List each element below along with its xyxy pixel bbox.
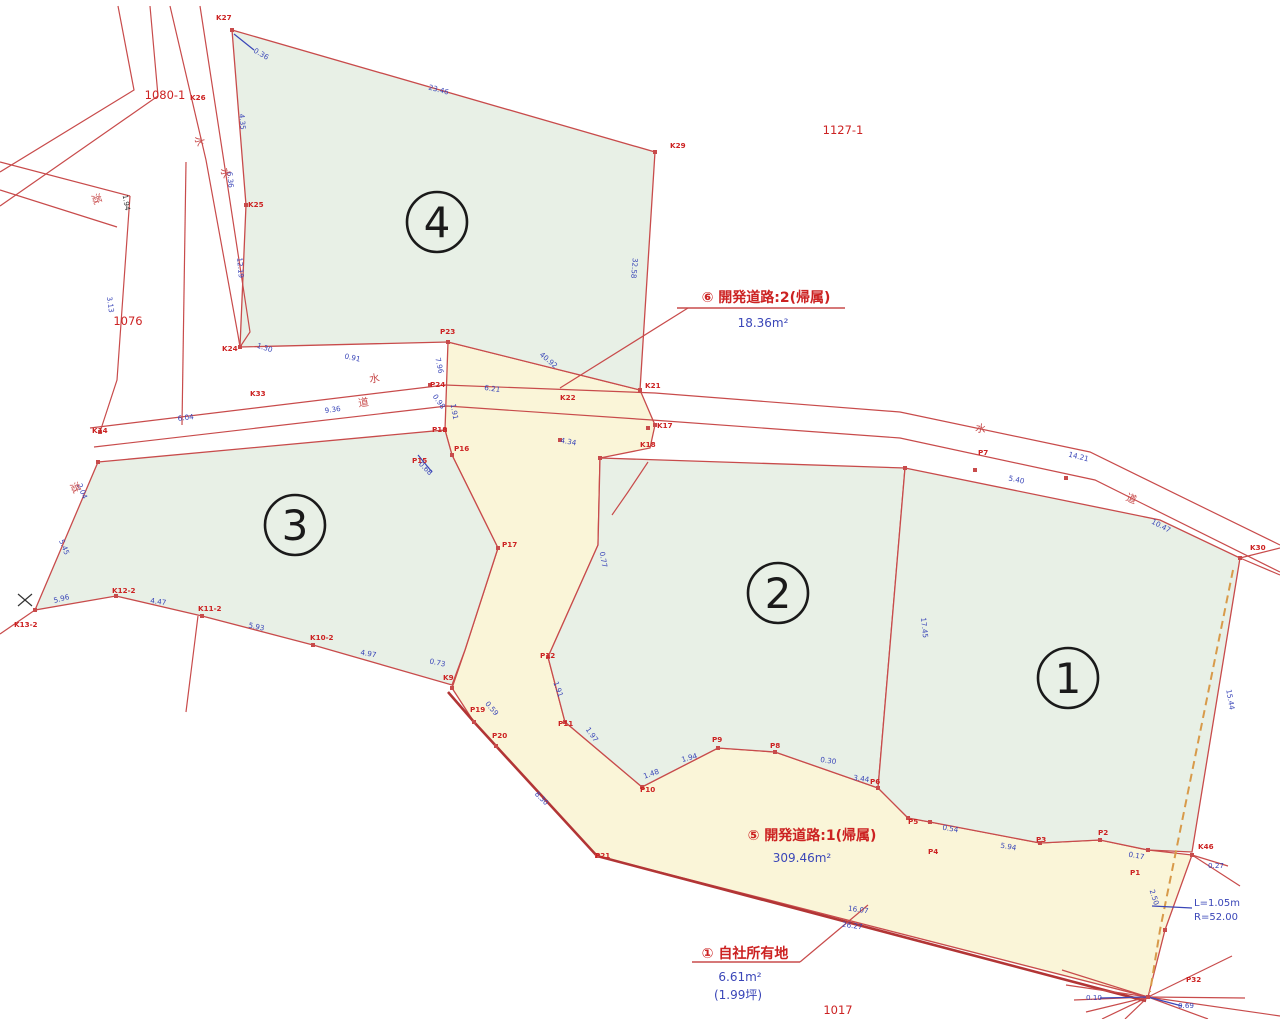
boundary-line	[1102, 997, 1148, 1019]
point-label: P17	[502, 540, 517, 549]
point-label: K29	[670, 141, 686, 150]
point-label: P3	[1036, 835, 1046, 844]
dimension-label: 4.35	[237, 113, 247, 130]
point-label: P23	[440, 327, 455, 336]
dimension-label: 0.98	[431, 392, 448, 411]
survey-point-marker	[773, 750, 777, 754]
dimension-label: 0.91	[344, 351, 362, 363]
own-land-annotation-label: ① 自社所有地	[702, 945, 789, 962]
survey-point-marker	[1163, 928, 1167, 932]
point-label: P20	[492, 731, 507, 740]
point-label: K17	[657, 421, 673, 430]
parcel-number: 1	[1055, 654, 1082, 703]
survey-point-marker	[450, 453, 454, 457]
landuse-kanji: 道	[357, 395, 370, 409]
landuse-kanji: 道	[1124, 491, 1139, 507]
survey-point-marker	[876, 786, 880, 790]
survey-point-marker	[1190, 853, 1194, 857]
survey-map: K27K26K25K24K29P23P24P18P16P15K22K21K17K…	[0, 0, 1280, 1019]
point-label: K11-2	[198, 604, 222, 613]
point-label: K14	[92, 426, 108, 435]
point-label: P6	[870, 777, 880, 786]
landuse-kanji: 漑	[88, 192, 104, 207]
curve-length-label: L=1.05m	[1194, 898, 1240, 909]
point-label: P8	[770, 741, 780, 750]
boundary-line	[186, 616, 198, 712]
point-label: K10-2	[310, 633, 334, 642]
lot-number: 1017	[823, 1003, 852, 1017]
point-label: K46	[1198, 842, 1214, 851]
point-label: P12	[540, 651, 555, 660]
dimension-label: 32.58	[629, 258, 640, 280]
dimension-label: 0.10	[1086, 993, 1102, 1002]
boundary-line	[1240, 558, 1280, 575]
point-label: P24	[430, 380, 445, 389]
survey-point-marker	[903, 466, 907, 470]
survey-point-marker	[638, 388, 642, 392]
survey-point-marker	[1146, 995, 1150, 999]
survey-point-marker	[472, 720, 476, 724]
dimension-label: 5.93	[248, 620, 266, 632]
lot-number: 1127-1	[823, 123, 864, 137]
survey-point-marker	[1146, 848, 1150, 852]
landuse-kanji: 水	[974, 422, 987, 436]
road1-annotation-label: ⑤ 開発道路:1(帰属)	[748, 827, 877, 844]
survey-point-marker	[653, 150, 657, 154]
point-label: P1	[1130, 868, 1140, 877]
point-label: K21	[645, 381, 661, 390]
road1-area-value: 309.46m²	[773, 851, 832, 865]
boundary-line	[0, 6, 134, 172]
survey-point-marker	[496, 546, 500, 550]
survey-point-marker	[96, 460, 100, 464]
parcel-2-area	[548, 458, 905, 788]
dimension-label: 7.96	[433, 357, 445, 375]
point-label: P5	[908, 817, 918, 826]
parcel-fill-layer	[35, 30, 1240, 997]
point-label: K33	[250, 389, 266, 398]
survey-point-marker	[230, 28, 234, 32]
point-label: K13-2	[14, 620, 38, 629]
parcel-number: 4	[424, 198, 451, 247]
dimension-label: 9.36	[324, 404, 342, 415]
boundary-line	[0, 162, 130, 196]
point-label: K26	[190, 93, 206, 102]
road2-annotation-label: ⑥ 開発道路:2(帰属)	[702, 289, 831, 306]
point-label: K25	[248, 200, 264, 209]
point-label: P18	[432, 425, 447, 434]
own-land-tsubo-value: (1.99坪)	[714, 988, 762, 1002]
survey-point-marker	[200, 614, 204, 618]
point-label: P7	[978, 448, 988, 457]
survey-point-marker	[598, 456, 602, 460]
point-label: P19	[470, 705, 485, 714]
boundary-line	[182, 162, 186, 425]
dimension-label: 4.47	[150, 596, 167, 607]
point-label: K24	[222, 344, 238, 353]
point-label: P4	[928, 847, 938, 856]
dimension-label: 26.27	[842, 920, 864, 932]
parcel-number: 3	[282, 501, 309, 550]
boundary-line	[1148, 997, 1280, 1016]
point-label: P2	[1098, 828, 1108, 837]
point-label: P21	[595, 851, 610, 860]
survey-point-marker	[450, 686, 454, 690]
dimension-label: 15.44	[1224, 689, 1237, 711]
survey-point-marker	[33, 608, 37, 612]
survey-point-marker	[1064, 476, 1068, 480]
point-label: K30	[1250, 543, 1266, 552]
survey-point-marker	[494, 744, 498, 748]
point-label: P9	[712, 735, 722, 744]
boundary-line	[1192, 855, 1240, 886]
dimension-label: 0.69	[1178, 1001, 1194, 1010]
dimension-label: 0.27	[1208, 861, 1224, 870]
point-label: K27	[216, 13, 232, 22]
survey-point-marker	[446, 340, 450, 344]
curve-radius-label: R=52.00	[1194, 912, 1238, 923]
boundary-line	[0, 6, 158, 206]
survey-point-marker	[311, 643, 315, 647]
boundary-line	[1148, 997, 1245, 998]
parcel-number: 2	[765, 569, 792, 618]
survey-point-marker	[973, 468, 977, 472]
point-label: K9	[443, 673, 454, 682]
dimension-label: 1.94	[121, 194, 133, 212]
survey-point-marker	[1098, 838, 1102, 842]
landuse-kanji: 水	[192, 135, 206, 149]
survey-point-marker	[1238, 556, 1242, 560]
landuse-kanji: 水	[369, 372, 382, 385]
point-label: P10	[640, 785, 655, 794]
lot-number: 1080-1	[145, 88, 186, 102]
road2-area-value: 18.36m²	[738, 316, 789, 330]
point-label: P32	[1186, 975, 1201, 984]
survey-point-marker	[928, 820, 932, 824]
point-label: K12-2	[112, 586, 136, 595]
point-label: P11	[558, 719, 573, 728]
point-label: P16	[454, 444, 469, 453]
dimension-label: 12.19	[235, 257, 246, 279]
survey-point-marker	[716, 746, 720, 750]
dimension-label: 6.04	[177, 412, 194, 423]
survey-point-marker	[238, 345, 242, 349]
point-label: K22	[560, 393, 576, 402]
cadastral-survey-map-page: K27K26K25K24K29P23P24P18P16P15K22K21K17K…	[0, 0, 1280, 1019]
survey-point-marker	[646, 426, 650, 430]
own-land-area-value: 6.61m²	[718, 970, 761, 984]
dimension-label: 5.40	[1008, 473, 1026, 485]
point-label: K18	[640, 440, 656, 449]
dimension-label: 3.13	[105, 296, 116, 313]
lot-number: 1076	[113, 314, 142, 328]
